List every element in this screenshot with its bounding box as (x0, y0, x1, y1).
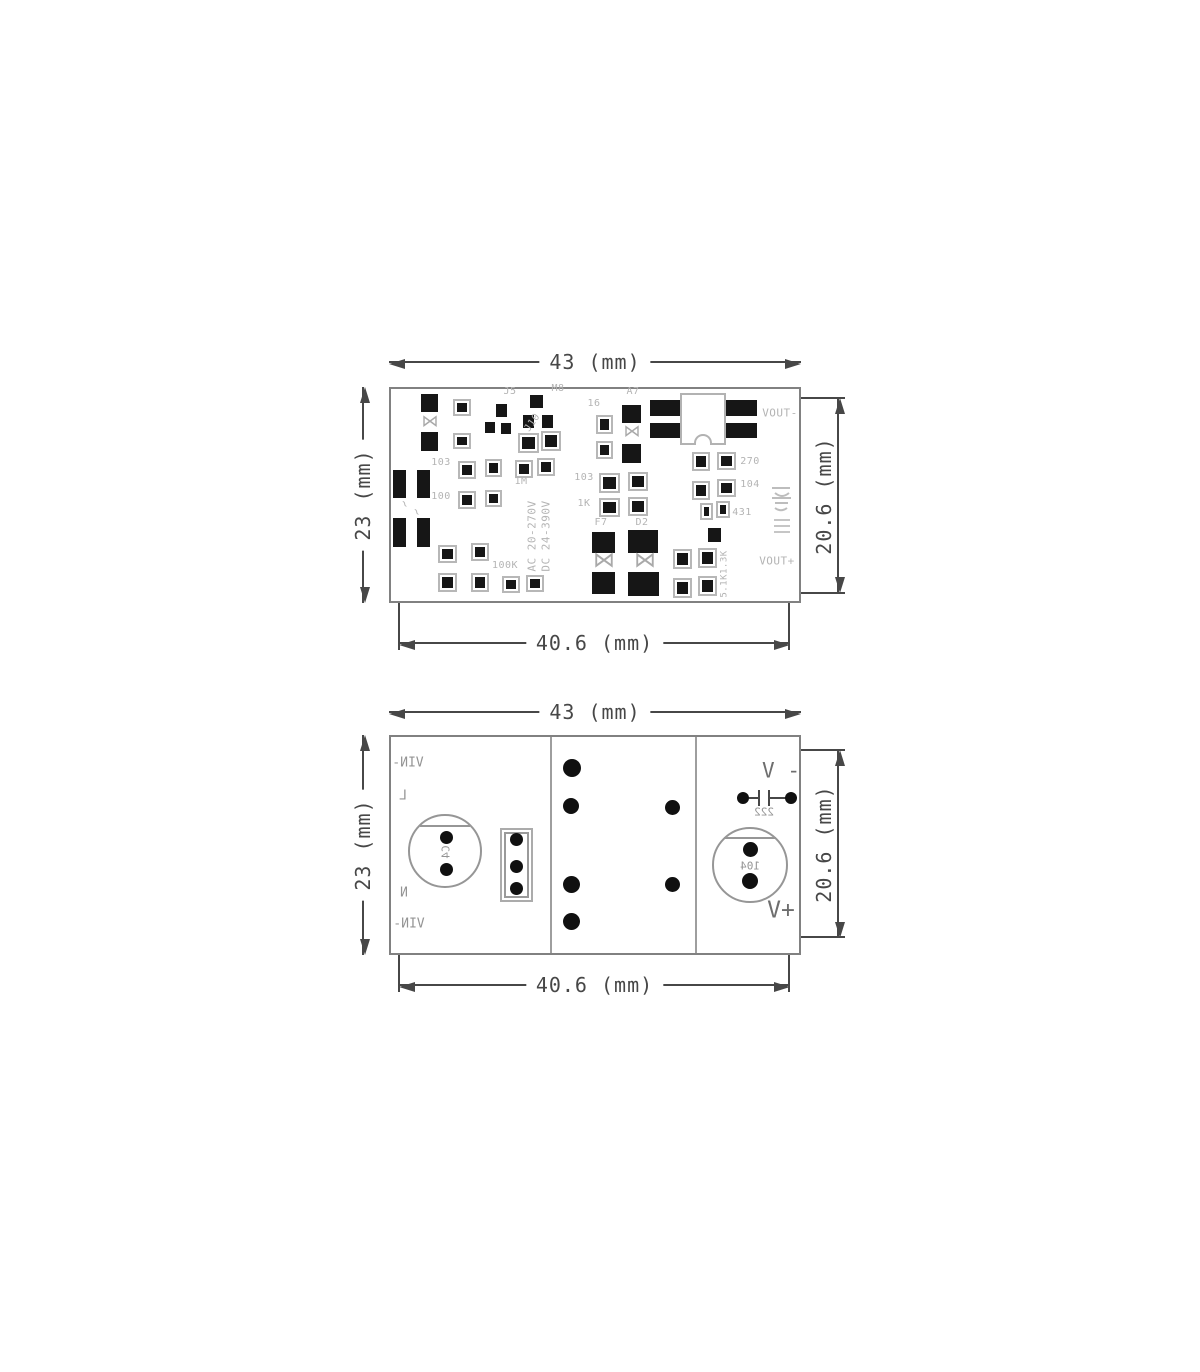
extension-line (788, 955, 790, 992)
dimension-left-height: 23 (mm) (362, 735, 364, 955)
pcb-bottom-label: VIN- (393, 918, 424, 931)
pcb-bottom-label: N (400, 887, 408, 900)
pcb-bottom-label: V+ (767, 900, 795, 923)
dimension-bottom-width: 40.6 (mm) (399, 984, 790, 986)
pcb-bottom-label: 222 (754, 807, 774, 818)
pcb-bottom-label: 104 (740, 861, 760, 872)
extension-line (801, 936, 845, 938)
dimension-label: 20.6 (mm) (813, 775, 835, 912)
pcb-bottom-label: VIN- (392, 757, 423, 770)
drawing-canvas: ⋈⋈⋈⋈ J5M8J1016A71031001M1031KF7D2100K270… (0, 0, 1200, 1372)
pcb-bottom-label: L (399, 790, 407, 803)
extension-line (801, 749, 845, 751)
dimension-top-width: 43 (mm) (389, 711, 801, 713)
dimension-label: 23 (mm) (352, 789, 374, 900)
pcb-bottom-label: V - (762, 761, 800, 782)
dimension-label: 43 (mm) (539, 701, 650, 723)
extension-line (398, 955, 400, 992)
dimension-label: 40.6 (mm) (526, 974, 663, 996)
pcb-bottom-label: C4 (441, 845, 452, 858)
bottom-labels-layer: VIN-LNVIN-C4222104V -V+ (0, 0, 1200, 1372)
dimension-right-height: 20.6 (mm) (837, 750, 839, 938)
